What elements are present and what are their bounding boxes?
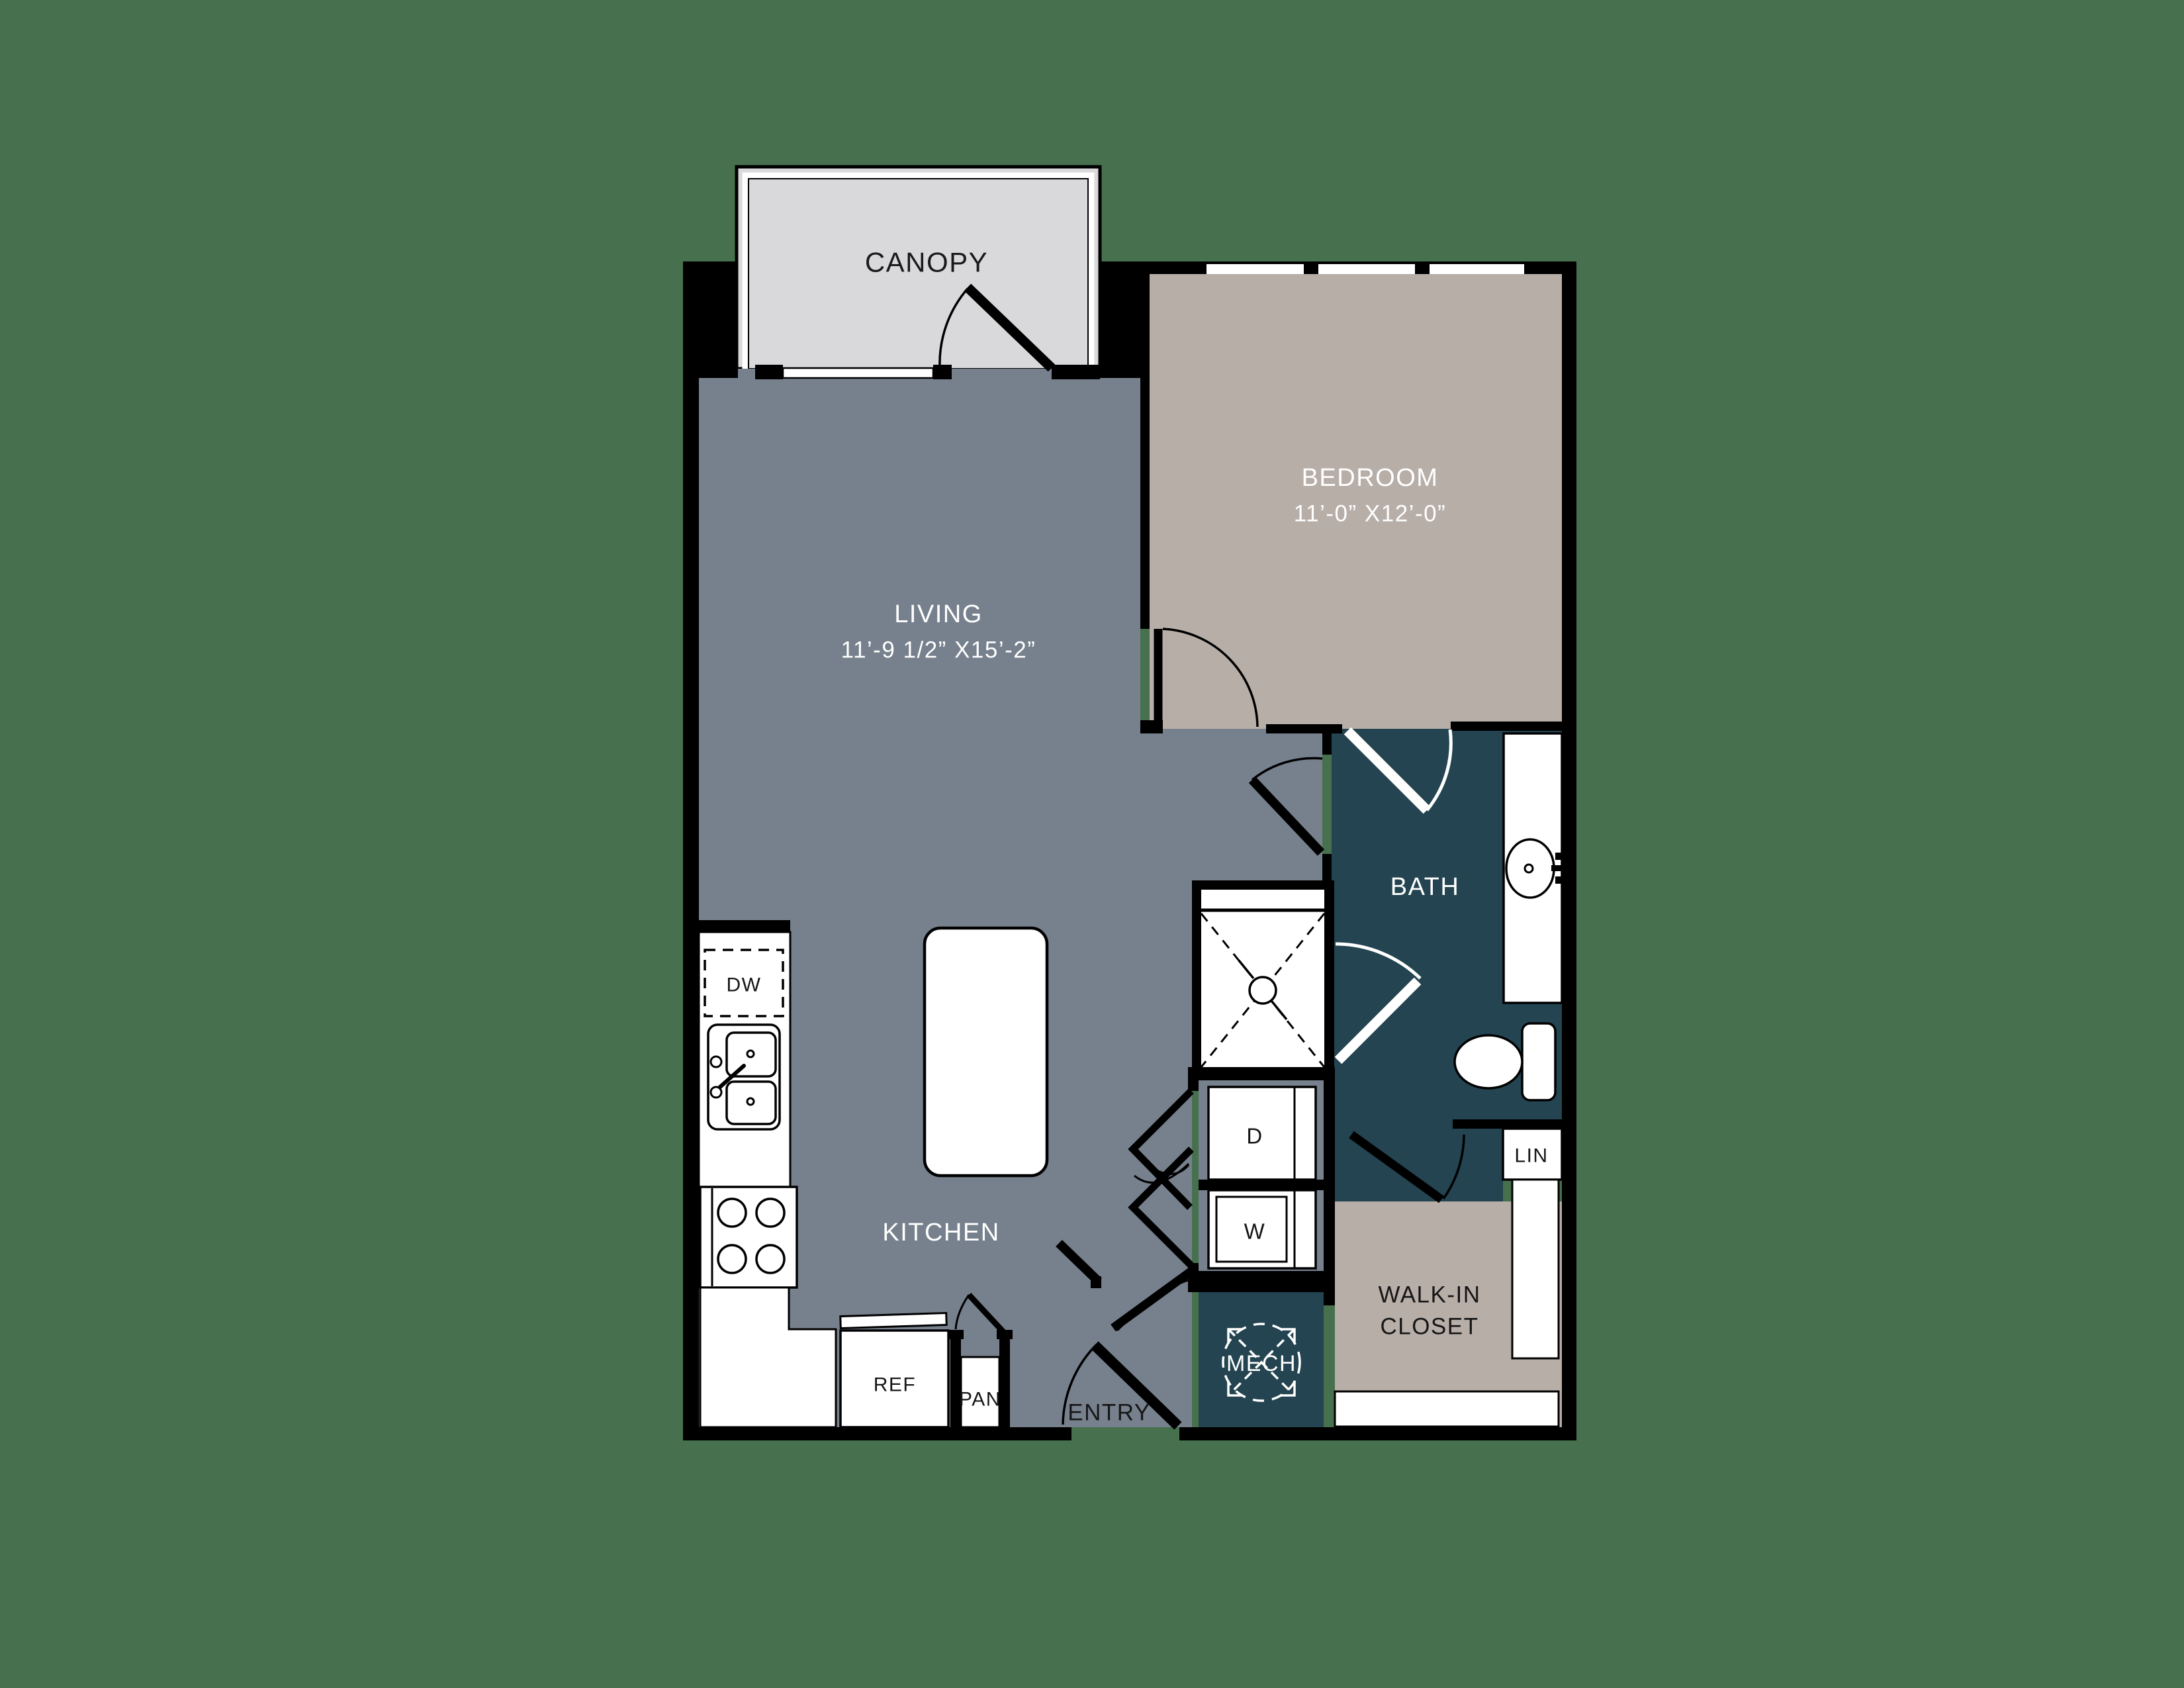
shower (1192, 880, 1334, 1080)
window-icon (1206, 264, 1304, 274)
hall-floor (1140, 729, 1322, 888)
bedroom-label: BEDROOM (1302, 464, 1439, 492)
shower-drain-icon (1250, 977, 1276, 1004)
window-icon (1430, 264, 1524, 274)
living-dims: 11’-9 1/2” X15’-2” (841, 637, 1036, 663)
living-label: LIVING (894, 600, 983, 628)
stove-icon (700, 1187, 797, 1288)
dishwasher-label: DW (727, 974, 762, 996)
counter-top-edge (699, 920, 790, 932)
entry-label: ENTRY (1068, 1400, 1151, 1426)
closet-shelf-bottom (1335, 1391, 1559, 1427)
sink-icon (708, 1025, 780, 1129)
linen-label: LIN (1514, 1145, 1548, 1167)
floor-plan: CANOPY LIVING 11’-9 1/2” X15’-2” BEDROOM… (0, 0, 2184, 1688)
kitchen-label: KITCHEN (882, 1219, 999, 1246)
walk-in-closet-label-line1: WALK-IN (1378, 1282, 1480, 1308)
patio-door-sill (783, 368, 933, 378)
walk-in-closet-label-line2: CLOSET (1380, 1314, 1479, 1340)
window-icon (1318, 264, 1415, 274)
wd-divider (1199, 1180, 1324, 1190)
bedroom-windows (1206, 264, 1524, 274)
bedroom-dims: 11’-0” X12’-0” (1294, 501, 1446, 527)
faucet-icon (1555, 853, 1567, 860)
faucet-icon (1555, 876, 1567, 884)
washer-label: W (1244, 1219, 1266, 1244)
dryer-label: D (1246, 1124, 1263, 1149)
vanity (1504, 733, 1567, 1003)
kitchen-island (925, 928, 1047, 1176)
floors (699, 274, 1562, 1427)
mech-label: MECH (1226, 1351, 1297, 1376)
refrigerator-label: REF (874, 1374, 917, 1396)
faucet-icon (1551, 865, 1567, 871)
closet-shelf-right (1512, 1180, 1559, 1358)
pantry-label: PAN (959, 1389, 1001, 1411)
floor-plan-page: CANOPY LIVING 11’-9 1/2” X15’-2” BEDROOM… (0, 0, 2184, 1688)
bath-label: BATH (1390, 873, 1460, 901)
refrigerator-icon (841, 1313, 948, 1427)
canopy-label: CANOPY (865, 247, 988, 278)
